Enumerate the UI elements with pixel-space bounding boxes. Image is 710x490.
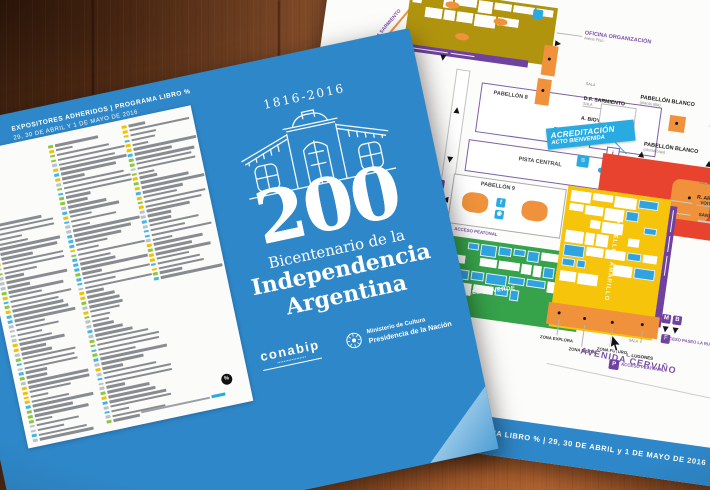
stand-number-badge [0,263,1,267]
stand-box [633,267,655,281]
facebook-icon: f [496,198,506,208]
stand-number-badge [75,273,80,277]
stand-number-badge [105,415,110,419]
stand-box [559,270,576,282]
stand-number-badge [19,372,24,376]
cervino-road-line [547,363,710,408]
stand-box [595,234,609,248]
stand-number-badge [100,391,105,395]
stand-number-badge [4,306,9,310]
stand-number-badge [101,396,106,400]
stand-box [586,247,604,258]
stand-box [567,216,590,230]
sala-prefix: SALA [699,182,710,189]
stand-number-badge [96,373,101,377]
stand-box [576,259,586,268]
camera-icon: ◉ [494,210,504,220]
stand-number-badge [0,273,3,277]
stand-number-badge [106,420,111,424]
stand-number-badge [64,221,69,225]
stand-number-badge [83,311,88,315]
stand-number-badge [66,230,71,234]
stand-box [494,2,511,12]
stand-box [480,244,497,258]
stand-number-badge [53,169,58,173]
ministry-text: Ministerio de Cultura Presidencia de la … [366,312,452,346]
stand-box [526,278,545,289]
stand-number-badge [138,201,143,205]
escalator-icon: ≡ [576,154,590,168]
stand-box [470,270,484,281]
access-arrow-icon [672,327,679,334]
stand-number-badge [123,135,128,139]
stand-box [533,265,543,277]
access-arrow-icon [446,156,453,163]
oficina-label: OFICINA ORGANIZACIÓN Arena Piso [584,30,652,50]
access-arrow-icon [638,151,645,158]
stand-number-badge [71,254,76,258]
stand-number-badge [76,278,81,282]
stand-number-badge [5,311,10,315]
stand-number-badge [54,173,59,177]
stand-number-badge [9,330,14,334]
stand-number-badge [11,339,16,343]
stand-number-badge [147,244,152,248]
stand-number-badge [139,206,144,210]
stand-number-badge [8,325,13,329]
stand-box [508,276,525,287]
stand-box [642,255,657,265]
stand-number-badge [127,154,132,158]
zona-explora-label: ZONA EXPLORA [540,335,573,344]
access-arrow-icon [440,54,447,61]
stand-box [543,267,555,279]
stand-number-badge [150,258,155,262]
stand-number-badge [84,316,89,320]
stand-box [412,0,422,3]
stand-number-badge [23,391,28,395]
stand-number-badge [26,405,31,409]
stand-number-badge [98,382,103,386]
stand-box [478,0,494,14]
stand-number-badge [49,150,54,154]
stand-number-badge [61,206,66,210]
stand-number-badge [0,282,5,286]
stand-number-badge [59,197,64,201]
stand-number-badge [88,335,93,339]
stand-number-badge [16,363,21,367]
stand-number-badge [2,296,7,300]
stand-number-badge [1,292,6,296]
stand-number-badge [74,268,79,272]
stand-number-badge [60,202,65,206]
stand-box [593,193,614,203]
stand-number-badge [52,164,57,168]
stand-number-badge [145,234,150,238]
stand-number-badge [72,259,77,263]
stand-box [590,220,600,230]
access-arrow-icon [453,107,460,114]
ministry-logo: Ministerio de Cultura Presidencia de la … [344,311,453,351]
stand-box [643,227,657,236]
stand-box [624,224,643,235]
stand-box [569,203,584,212]
stand-box [423,0,443,5]
stand-number-badge [128,158,133,162]
metro-icon: M [661,314,671,324]
stand-box [584,205,603,216]
stand-number-badge [50,154,55,158]
stand-number-badge [82,306,87,310]
stand-number-badge [132,177,137,181]
stand-number-badge [140,210,145,214]
stand-number-badge [70,249,75,253]
stand-box [641,213,654,222]
stand-number-badge [6,315,11,319]
sala-prefix: SALA [585,83,627,93]
footer-blue-bar [211,392,225,398]
stand-number-badge [28,415,33,419]
stand-number-badge [0,268,2,272]
stand-number-badge [69,244,74,248]
stand-number-badge [81,301,86,305]
stand-number-badge [3,301,8,305]
stand-box [561,257,575,267]
stand-box [565,230,585,244]
photo-scene: AVENIDA SARMIENTO M B OFICINA ORGANIZACI… [0,0,710,490]
stand-number-badge [0,277,4,281]
access-arrow-icon [662,326,669,333]
stand-number-badge [146,239,151,243]
stand-number-badge [56,183,61,187]
stand-number-badge [99,387,104,391]
stand-box [626,253,641,262]
stand-number-badge [20,377,25,381]
stand-number-badge [79,292,84,296]
stand-number-badge [31,429,36,433]
stand-number-badge [153,272,158,276]
stand-box [640,240,653,251]
stand-number-badge [137,196,142,200]
stand-number-badge [87,330,92,334]
leader-line [556,32,582,37]
stand-number-badge [73,263,78,267]
stand-box [466,256,479,266]
stand-number-badge [125,144,130,148]
stand-number-badge [13,348,18,352]
stand-number-badge [55,178,60,182]
stand-number-badge [131,173,136,177]
stand-number-badge [65,225,70,229]
ochre-blue-stand [532,9,543,20]
stand-number-badge [95,368,100,372]
stand-number-badge [149,253,154,257]
stand-box [456,11,474,24]
stand-box [613,265,633,278]
stand-number-badge [129,163,134,167]
stand-box [485,272,507,286]
stand-box [513,5,535,15]
stand-number-badge [80,297,85,301]
stand-number-badge [121,125,126,129]
conabip-logo: conabip ▪▪▪▪▪▪▪▪▪▪▪▪▪▪▪▪▪▪ [259,337,323,371]
stand-number-badge [89,339,94,343]
stand-box [521,263,532,275]
stand-number-badge [144,229,149,233]
stand-box [411,5,424,17]
stand-number-badge [94,363,99,367]
stand-number-badge [85,320,90,324]
stand-number-badge [78,287,83,291]
stand-box [563,244,586,259]
stand-number-badge [67,235,72,239]
stand-number-badge [102,401,107,405]
stand-number-badge [124,139,129,143]
stand-number-badge [22,386,27,390]
stand-number-badge [135,191,140,195]
stand-number-badge [7,320,12,324]
stand-number-badge [62,211,67,215]
stand-box [638,199,659,211]
stand-box [443,9,455,21]
stand-number-badge [86,325,91,329]
stand-number-badge [97,377,102,381]
stand-number-badge [25,401,30,405]
stand-number-badge [68,240,73,244]
stand-number-badge [152,267,157,271]
stand-number-badge [142,220,147,224]
stand-box [585,233,595,246]
stand-number-badge [63,216,68,220]
stand-number-badge [27,410,32,414]
stand-number-badge [148,248,153,252]
stand-box [527,250,540,262]
stand-number-badge [18,367,23,371]
stand-box [424,7,443,19]
stand-number-badge [151,263,156,267]
acceso-rural-label: ACCESO PASEO LA RURAL [663,336,710,349]
stand-number-badge [154,277,159,281]
stand-number-badge [141,215,146,219]
stand-number-badge [12,344,17,348]
stand-number-badge [15,358,20,362]
stand-number-badge [33,439,38,443]
stand-box [576,273,598,286]
stand-number-badge [29,420,34,424]
stand-box [467,242,479,251]
stand-number-badge [0,287,5,291]
stand-number-badge [77,282,82,286]
stand-number-badge [30,424,35,428]
cursor-icon [609,335,624,354]
bus-icon: B [672,315,682,325]
stand-number-badge [32,434,37,438]
stand-number-badge [103,406,108,410]
stand-box [625,211,640,223]
stand-number-badge [126,149,131,153]
stand-number-badge [93,358,98,362]
stand-number-badge [133,182,138,186]
stand-box [614,196,637,210]
pab-blanco-baja-label: PABELLÓN BLANCO (planta baja) [643,142,699,160]
stand-number-badge [134,187,139,191]
stand-number-badge [92,354,97,358]
libro-percent-logo: % [220,373,233,386]
stand-number-badge [24,396,29,400]
stand-number-badge [90,344,95,348]
stand-box [513,248,526,257]
stand-box [479,258,497,269]
stand-number-badge [143,225,148,229]
stand-number-badge [21,382,26,386]
stand-number-badge [130,168,135,172]
stand-number-badge [91,349,96,353]
stand-number-badge [10,334,15,338]
access-arrow-icon [705,160,710,167]
stand-box [498,246,512,256]
escudo-emblem-icon [344,330,365,351]
stand-number-badge [58,192,63,196]
stand-number-badge [48,145,53,149]
stand-box [587,261,596,270]
stand-number-badge [122,130,127,134]
stand-box [628,239,640,248]
stand-number-badge [14,353,19,357]
stand-number-badge [51,159,56,163]
stand-box [498,260,520,271]
stand-number-badge [104,410,109,414]
stand-box [570,190,591,204]
stand-number-badge [57,187,62,191]
